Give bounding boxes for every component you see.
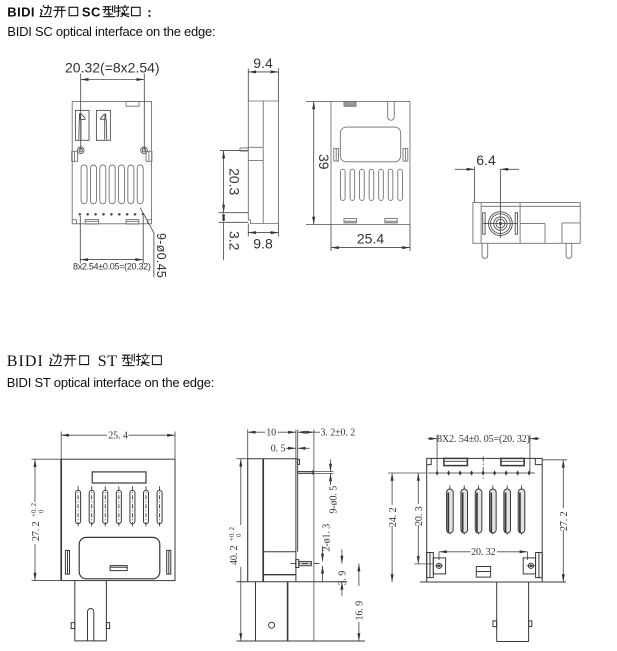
svg-text:BIDI SC optical interface on t: BIDI SC optical interface on the edge:	[7, 24, 215, 39]
svg-text:+0. 2: +0. 2	[229, 526, 236, 541]
svg-text:3. 9: 3. 9	[338, 571, 349, 586]
svg-text:8X2. 54±0. 05=(20. 32): 8X2. 54±0. 05=(20. 32)	[437, 434, 530, 445]
svg-text:20.32(=8x2.54): 20.32(=8x2.54)	[65, 60, 160, 76]
svg-text:20.3: 20.3	[226, 168, 242, 195]
svg-text:9.4: 9.4	[253, 55, 273, 71]
svg-text:SC: SC	[82, 4, 101, 19]
svg-text:16. 9: 16. 9	[355, 601, 366, 621]
svg-text:BIDI ST optical interface on t: BIDI ST optical interface on the edge:	[7, 375, 214, 390]
svg-text:+0. 2: +0. 2	[31, 502, 38, 517]
svg-text:0. 5: 0. 5	[271, 444, 286, 455]
svg-text:40. 2: 40. 2	[229, 545, 240, 565]
svg-text:6.4: 6.4	[476, 152, 496, 168]
svg-text:9-ø0.45: 9-ø0.45	[154, 233, 168, 278]
svg-text:25. 4: 25. 4	[108, 430, 128, 441]
svg-text:20. 32: 20. 32	[471, 547, 496, 558]
svg-text:8x2.54±0.05=(20.32): 8x2.54±0.05=(20.32)	[73, 262, 151, 272]
svg-text:20. 3: 20. 3	[414, 506, 425, 526]
svg-text:3. 2±0. 2: 3. 2±0. 2	[321, 428, 356, 439]
svg-text:9.8: 9.8	[253, 236, 273, 252]
svg-text:27. 2: 27. 2	[31, 521, 42, 541]
svg-text:BIDI: BIDI	[7, 353, 44, 370]
svg-text:9-ø0. 5: 9-ø0. 5	[329, 486, 340, 514]
svg-text:2-ø1. 3: 2-ø1. 3	[322, 524, 333, 552]
svg-text:0: 0	[38, 509, 45, 513]
svg-text:3.2: 3.2	[226, 231, 242, 251]
svg-text:10: 10	[266, 428, 276, 439]
svg-text:0: 0	[236, 533, 243, 537]
svg-text:25.4: 25.4	[357, 231, 384, 247]
svg-text:27. 2: 27. 2	[559, 511, 570, 531]
svg-text:ST: ST	[98, 353, 118, 370]
svg-text:24. 2: 24. 2	[388, 507, 399, 527]
svg-text:39: 39	[316, 154, 332, 170]
svg-text:BIDI: BIDI	[7, 4, 35, 19]
